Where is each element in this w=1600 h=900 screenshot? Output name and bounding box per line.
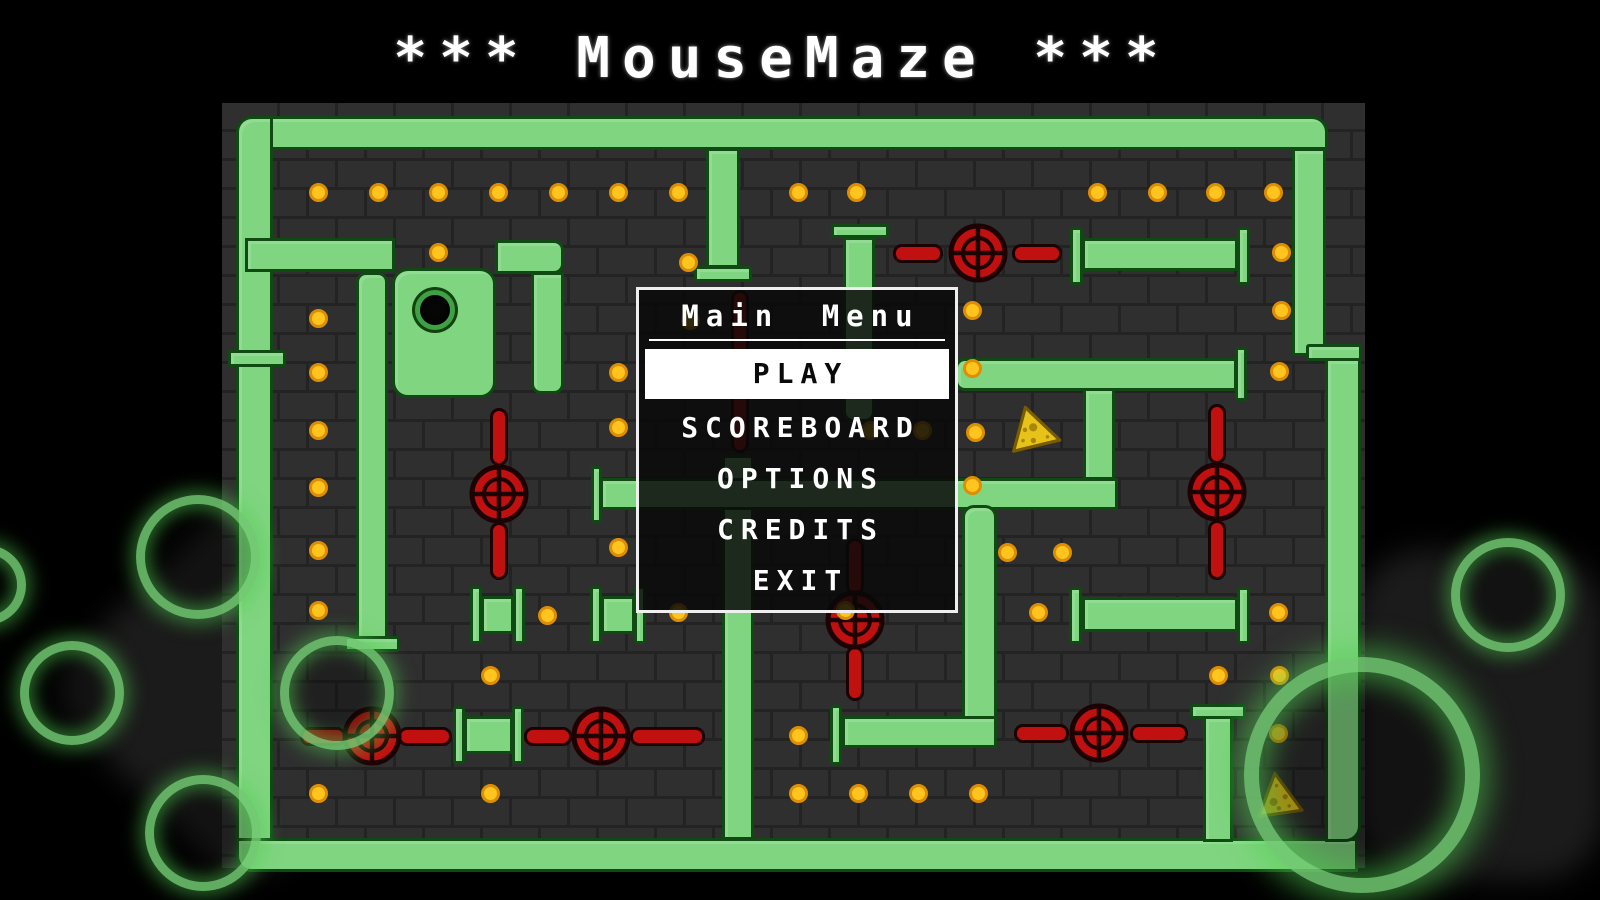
pellet: [309, 309, 328, 328]
pellet: [1206, 183, 1225, 202]
pipe-segment: [831, 224, 889, 238]
pellet: [609, 183, 628, 202]
valve-stem: [490, 522, 508, 580]
pipe-segment: [513, 586, 525, 644]
pellet: [489, 183, 508, 202]
pellet: [963, 301, 982, 320]
pellet: [966, 423, 985, 442]
pellet: [847, 183, 866, 202]
glow-ring: [20, 641, 124, 745]
valve-wheel-icon: [945, 220, 1011, 286]
pellet: [481, 666, 500, 685]
valve-stem: [1208, 520, 1226, 580]
pipe-segment: [356, 272, 388, 640]
pellet: [1088, 183, 1107, 202]
pellet: [969, 784, 988, 803]
pipe-segment: [228, 350, 286, 367]
pipe-segment: [955, 358, 1237, 391]
pellet: [309, 784, 328, 803]
valve-stem: [1130, 724, 1188, 743]
valve-wheel-icon: [1184, 459, 1250, 525]
pellet: [609, 538, 628, 557]
pellet: [609, 418, 628, 437]
pipe-segment: [591, 466, 602, 523]
pellet: [309, 478, 328, 497]
valve-stem: [846, 646, 864, 701]
pipe-segment: [236, 116, 273, 860]
glow-ring: [1451, 538, 1565, 652]
pipe-segment: [531, 272, 564, 394]
cheese-icon: [1008, 405, 1066, 463]
pipe-segment: [706, 148, 740, 268]
pipe-segment: [481, 596, 514, 634]
pipe-segment: [1069, 587, 1082, 644]
pellet: [309, 541, 328, 560]
pellet: [309, 601, 328, 620]
menu-title-divider: [649, 339, 945, 341]
pipe-segment: [1070, 227, 1083, 285]
pipe-segment: [236, 838, 1358, 872]
pipe-segment: [962, 505, 997, 748]
pellet: [369, 183, 388, 202]
main-menu-panel: Main Menu PLAY SCOREBOARD OPTIONS CREDIT…: [636, 287, 958, 613]
pipe-segment: [392, 268, 496, 398]
pellet: [549, 183, 568, 202]
pipe-segment: [245, 238, 395, 272]
pellet: [1264, 183, 1283, 202]
pellet: [429, 243, 448, 262]
pipe-segment: [1203, 716, 1233, 842]
pipe-segment: [1082, 238, 1238, 271]
pipe-segment: [1082, 597, 1238, 632]
valve-stem: [524, 727, 572, 746]
pipe-segment: [464, 716, 513, 754]
game-title: *** MouseMaze ***: [0, 26, 1564, 91]
glow-ring: [280, 636, 394, 750]
pipe-segment: [495, 240, 564, 274]
menu-item-exit[interactable]: EXIT: [639, 555, 955, 606]
pellet: [429, 183, 448, 202]
pellet: [609, 363, 628, 382]
valve-stem: [398, 727, 452, 746]
valve-stem: [893, 244, 943, 263]
pellet: [909, 784, 928, 803]
pellet: [309, 363, 328, 382]
menu-item-options[interactable]: OPTIONS: [639, 453, 955, 504]
valve-stem: [630, 727, 705, 746]
pellet: [309, 183, 328, 202]
valve-wheel-icon: [1066, 700, 1132, 766]
pellet: [1272, 243, 1291, 262]
pellet: [669, 183, 688, 202]
pellet: [309, 421, 328, 440]
valve-stem: [490, 408, 508, 466]
pipe-segment: [1190, 704, 1246, 719]
pellet: [963, 476, 982, 495]
valve-stem: [1014, 724, 1069, 743]
pipe-segment: [1292, 148, 1326, 356]
pellet: [1209, 666, 1228, 685]
pipe-segment: [1237, 587, 1250, 644]
pellet: [1269, 603, 1288, 622]
glow-ring: [145, 775, 261, 891]
pellet: [1270, 666, 1289, 685]
valve-wheel-icon: [568, 703, 634, 769]
valve-stem: [1208, 404, 1226, 464]
menu-item-scoreboard[interactable]: SCOREBOARD: [639, 402, 955, 453]
pellet: [679, 253, 698, 272]
pipe-segment: [694, 266, 752, 282]
glow-ring: [136, 495, 260, 619]
valve-stem: [1012, 244, 1062, 263]
glow-ring: [1244, 657, 1480, 893]
menu-item-play[interactable]: PLAY: [645, 349, 949, 399]
pellet: [849, 784, 868, 803]
menu-title: Main Menu: [639, 299, 955, 333]
pipe-segment: [842, 716, 997, 748]
pipe-segment: [830, 705, 842, 765]
pipe-segment: [1235, 347, 1247, 401]
pipe-segment: [1083, 388, 1115, 480]
pellet: [538, 606, 557, 625]
pellet: [1272, 301, 1291, 320]
pipe-segment: [1237, 227, 1250, 285]
valve-wheel-icon: [466, 461, 532, 527]
menu-item-credits[interactable]: CREDITS: [639, 504, 955, 555]
pellet: [1270, 362, 1289, 381]
pellet: [481, 784, 500, 803]
game-screen: Main Menu PLAY SCOREBOARD OPTIONS CREDIT…: [0, 0, 1600, 900]
pellet: [1029, 603, 1048, 622]
pellet: [1053, 543, 1072, 562]
pellet: [789, 726, 808, 745]
pellet: [963, 359, 982, 378]
pipe-segment: [236, 116, 1328, 150]
pellet: [1148, 183, 1167, 202]
pipe-segment: [512, 706, 524, 764]
pellet: [789, 183, 808, 202]
mouse-hole: [415, 290, 455, 330]
pellet: [789, 784, 808, 803]
pipe-segment: [601, 596, 635, 634]
pellet: [998, 543, 1017, 562]
glow-ring: [0, 545, 26, 625]
